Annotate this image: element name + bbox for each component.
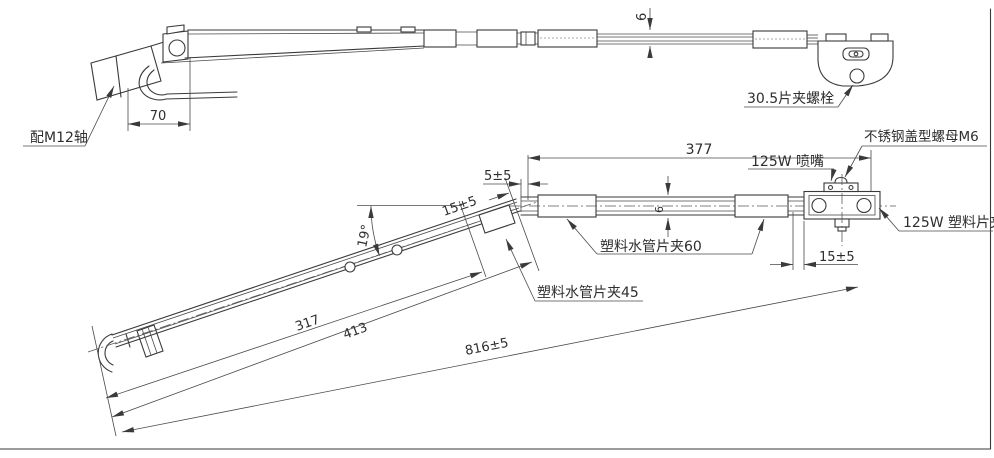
dim-text: 377 [686,142,713,158]
dim-text: 15±5 [819,250,855,265]
tab [357,27,371,32]
wiper-arm-drawing: 6 70 配M12轴 30.5片夹螺栓 [0,0,994,458]
clip-hole [812,199,826,213]
tab [401,27,415,32]
technical-drawing-page: 6 70 配M12轴 30.5片夹螺栓 [0,0,994,458]
label-text: 125W 塑料片夹 [903,215,994,231]
pivot-bracket [163,25,188,62]
dim-text: 5±5 [484,169,511,184]
label-text: 不锈钢盖型螺母M6 [864,129,979,145]
label-text: 配M12轴 [30,130,88,146]
label-text: 塑料水管片夹60 [600,239,702,255]
dim-text: 70 [150,109,167,124]
end-cap [818,34,893,86]
dim-text: 6 [653,206,666,213]
arm-hole [345,262,355,272]
pivot-hole [169,40,185,56]
clip-hole [857,199,871,213]
arm-hole [392,245,402,255]
label-text: 塑料水管片夹45 [537,285,639,301]
dim-text: 6 [635,13,650,21]
clamp-bolt-hole [850,69,864,83]
label-text: 125W 喷嘴 [751,154,824,170]
label-text: 30.5片夹螺栓 [747,91,834,107]
